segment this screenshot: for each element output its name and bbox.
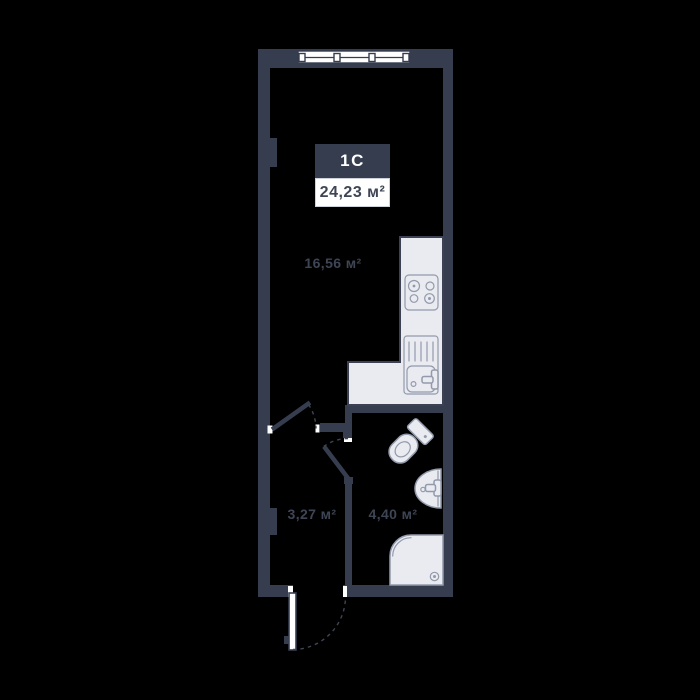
window-mullion-icon [334,54,340,62]
total-area-label: 24,23 м² [315,178,390,207]
window-mullion-icon [299,54,305,62]
entrance-door [284,586,347,650]
floorplan-drawing [0,0,700,700]
floorplan-canvas: 1C 24,23 м² 16,56 м² 3,27 м² 4,40 м² [0,0,700,700]
wall-partition-upper [345,413,352,432]
wall-pier-upper [268,138,277,167]
wall-partition-lower [345,484,352,585]
door-leaf [272,403,310,430]
wall-bottom-right [343,585,453,597]
washbasin-icon [415,469,441,508]
door-jamb [343,586,347,597]
wall-door-stub [320,423,345,432]
wall-partition-cap-top [343,432,352,438]
unit-type-badge: 1C 24,23 м² [315,144,390,207]
toilet-icon [383,418,434,469]
wall-right [443,49,453,597]
wall-pier-lower [268,508,277,535]
kitchen [348,237,443,405]
shower-icon [390,535,443,585]
window-mullion-icon [403,54,409,62]
window [298,51,410,63]
door-leaf [324,447,349,480]
door-leaf [289,593,296,650]
wall-bathroom-top [345,405,443,413]
door-swing-arc [293,597,346,650]
bathroom-door [324,438,352,480]
bathroom-fixtures [383,418,443,585]
unit-type-label: 1C [315,144,390,178]
bathroom-area-label: 4,40 м² [369,506,418,522]
doors [268,403,353,651]
door-jamb [268,426,273,434]
door-jamb [316,425,320,433]
door-swing-arc [309,405,316,429]
wall-bottom-left [258,585,293,597]
living-room-area-label: 16,56 м² [304,255,361,271]
hallway-area-label: 3,27 м² [288,506,337,522]
window-mullion-icon [369,54,375,62]
hallway-door [268,403,320,434]
door-handle-icon [284,636,289,644]
